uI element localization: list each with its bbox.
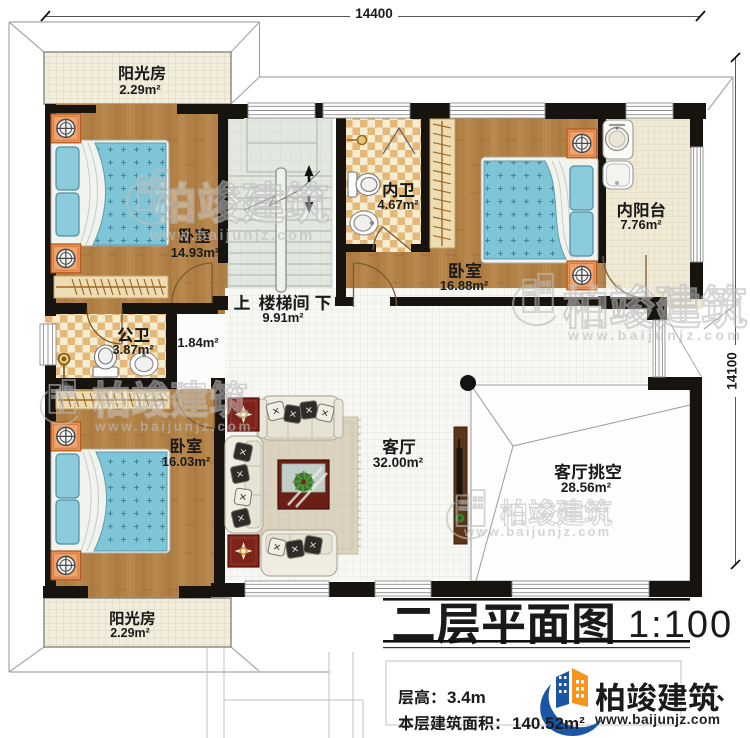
svg-text:www.baijunjz.com: www.baijunjz.com <box>94 419 253 434</box>
svg-text:www.baijunjz.com: www.baijunjz.com <box>149 227 315 244</box>
svg-text:16.03m²: 16.03m² <box>162 454 211 469</box>
svg-text:14.93m²: 14.93m² <box>171 245 220 260</box>
svg-text:www.baijunjz.com: www.baijunjz.com <box>594 712 720 727</box>
svg-text:14400: 14400 <box>355 6 393 21</box>
svg-text:3.4m: 3.4m <box>447 688 486 707</box>
svg-text:16.88m²: 16.88m² <box>440 278 489 293</box>
svg-text:2.29m²: 2.29m² <box>110 626 150 640</box>
svg-text:www.baijunjz.com: www.baijunjz.com <box>463 524 611 539</box>
svg-text:3.87m²: 3.87m² <box>112 342 154 357</box>
svg-text:140.52m²: 140.52m² <box>512 714 585 733</box>
svg-text:4.67m²: 4.67m² <box>377 197 419 212</box>
svg-text:28.56m²: 28.56m² <box>561 480 612 495</box>
svg-text:32.00m²: 32.00m² <box>373 455 424 470</box>
svg-text:1:100: 1:100 <box>628 604 733 646</box>
svg-text:2.29m²: 2.29m² <box>119 82 161 97</box>
svg-text:9.91m²: 9.91m² <box>262 310 304 325</box>
svg-text:1.84m²: 1.84m² <box>177 335 219 350</box>
svg-text:7.76m²: 7.76m² <box>620 217 662 232</box>
svg-text:14100: 14100 <box>725 352 740 390</box>
svg-text:www.baijunjz.com: www.baijunjz.com <box>567 327 743 343</box>
